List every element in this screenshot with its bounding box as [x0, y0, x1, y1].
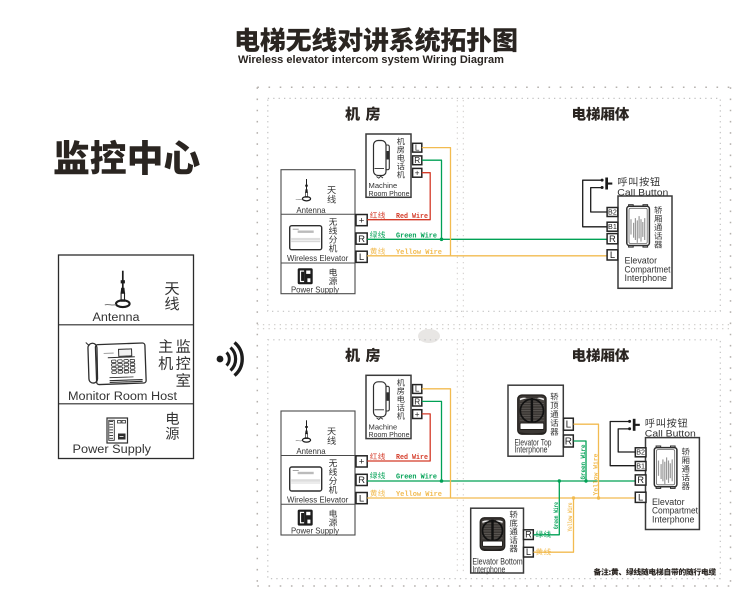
- svg-text:R: R: [565, 436, 572, 447]
- svg-text:R: R: [609, 233, 616, 244]
- svg-text:Wireless Elevator: Wireless Elevator: [287, 495, 349, 504]
- svg-text:Monitor Room Host: Monitor Room Host: [68, 389, 178, 403]
- svg-text:L: L: [415, 385, 420, 394]
- svg-text:Power Supply: Power Supply: [73, 442, 152, 456]
- svg-text:Yellow Wire: Yellow Wire: [592, 454, 600, 496]
- svg-text:Antenna: Antenna: [93, 312, 141, 324]
- svg-text:L: L: [610, 249, 615, 260]
- svg-text:Yellow Wire: Yellow Wire: [396, 491, 442, 499]
- svg-text:R: R: [637, 474, 644, 485]
- svg-text:Green Wire: Green Wire: [580, 445, 588, 480]
- svg-text:L: L: [638, 491, 643, 502]
- svg-text:L: L: [566, 420, 572, 431]
- svg-text:Yellow Wire: Yellow Wire: [567, 502, 574, 531]
- svg-text:Room Phone: Room Phone: [369, 189, 410, 198]
- svg-text:Antenna: Antenna: [296, 206, 326, 215]
- svg-text:R: R: [525, 530, 532, 540]
- svg-text:B2: B2: [608, 207, 617, 216]
- svg-text:Wireless elevator intercom sys: Wireless elevator intercom system Wiring…: [238, 54, 504, 66]
- svg-text:Interphone: Interphone: [652, 514, 695, 524]
- svg-text:B2: B2: [636, 448, 645, 457]
- svg-text:R: R: [358, 475, 365, 486]
- svg-text:Power Supply: Power Supply: [291, 285, 340, 294]
- svg-text:Yellow Wire: Yellow Wire: [396, 249, 442, 257]
- svg-text:Green Wire: Green Wire: [396, 473, 437, 481]
- svg-text:Wireless Elevator: Wireless Elevator: [287, 254, 349, 263]
- svg-text:L: L: [526, 547, 531, 557]
- svg-text:+: +: [415, 410, 420, 419]
- svg-text:L: L: [415, 143, 420, 152]
- svg-text:Power Supply: Power Supply: [291, 527, 340, 536]
- svg-text:+: +: [415, 169, 420, 178]
- svg-text:Green Wire: Green Wire: [396, 233, 437, 241]
- svg-text:R: R: [414, 156, 420, 165]
- svg-text:Interphone: Interphone: [625, 273, 668, 283]
- svg-text:Interphone: Interphone: [515, 445, 548, 455]
- svg-text:+: +: [359, 215, 365, 226]
- svg-text:L: L: [359, 493, 365, 504]
- svg-text:B1: B1: [608, 222, 617, 231]
- svg-text:R: R: [414, 397, 420, 406]
- svg-text:B1: B1: [636, 461, 645, 470]
- svg-text:Room Phone: Room Phone: [369, 430, 410, 439]
- svg-text:L: L: [359, 252, 365, 263]
- svg-text:Green Wire: Green Wire: [553, 502, 560, 529]
- svg-text:R: R: [358, 234, 365, 245]
- svg-text:Interphone: Interphone: [472, 564, 505, 574]
- svg-text:Antenna: Antenna: [296, 447, 326, 456]
- svg-text:Red Wire: Red Wire: [396, 213, 428, 221]
- svg-text:+: +: [359, 457, 365, 468]
- svg-text:Red Wire: Red Wire: [396, 454, 428, 462]
